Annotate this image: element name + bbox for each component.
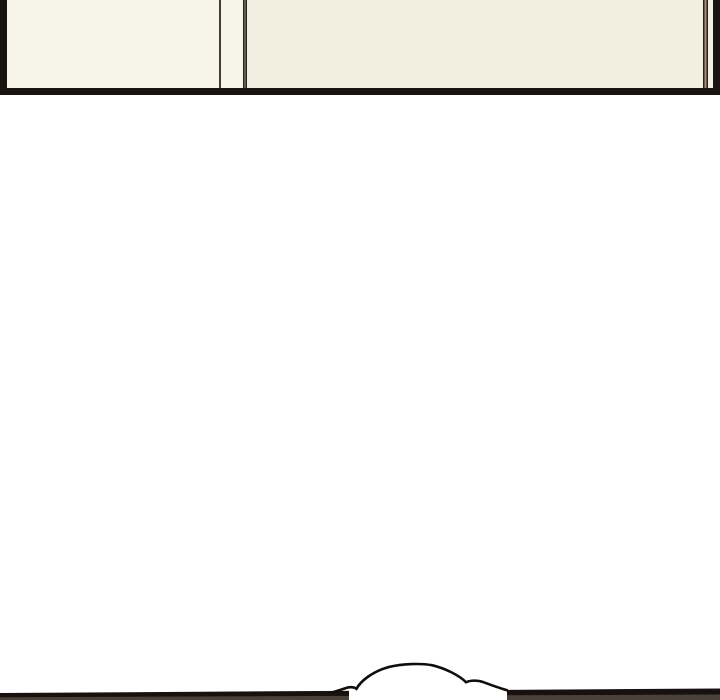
panel-wall-right-area: [247, 0, 703, 88]
panel-border-left: [0, 0, 7, 95]
panel-border-bottom: [0, 88, 720, 95]
panel-gutter: [0, 95, 720, 650]
panel-wall-left-area: [7, 0, 219, 88]
comic-panel-next-top-edge: [0, 650, 720, 700]
door-frame-strip: [221, 0, 243, 88]
webtoon-page: [0, 0, 720, 700]
comic-panel-top: [0, 0, 720, 95]
panel-border-right: [713, 0, 720, 95]
